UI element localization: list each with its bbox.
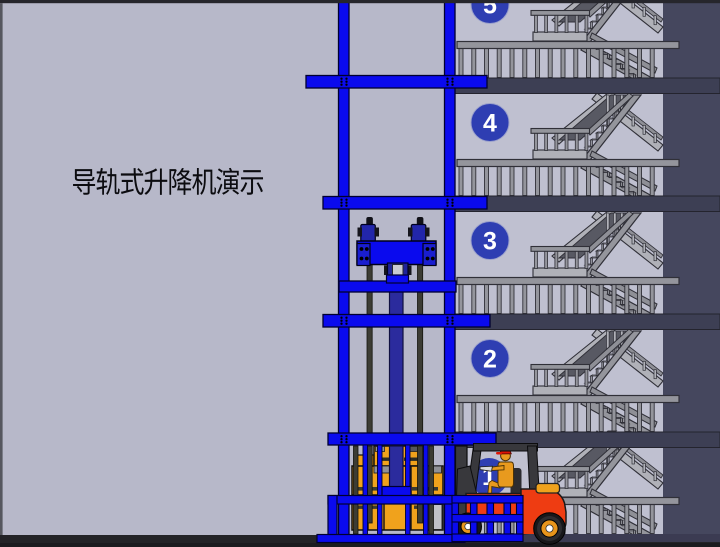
- svg-text:2: 2: [483, 345, 497, 373]
- svg-text:3: 3: [483, 227, 497, 255]
- svg-text:4: 4: [483, 109, 497, 137]
